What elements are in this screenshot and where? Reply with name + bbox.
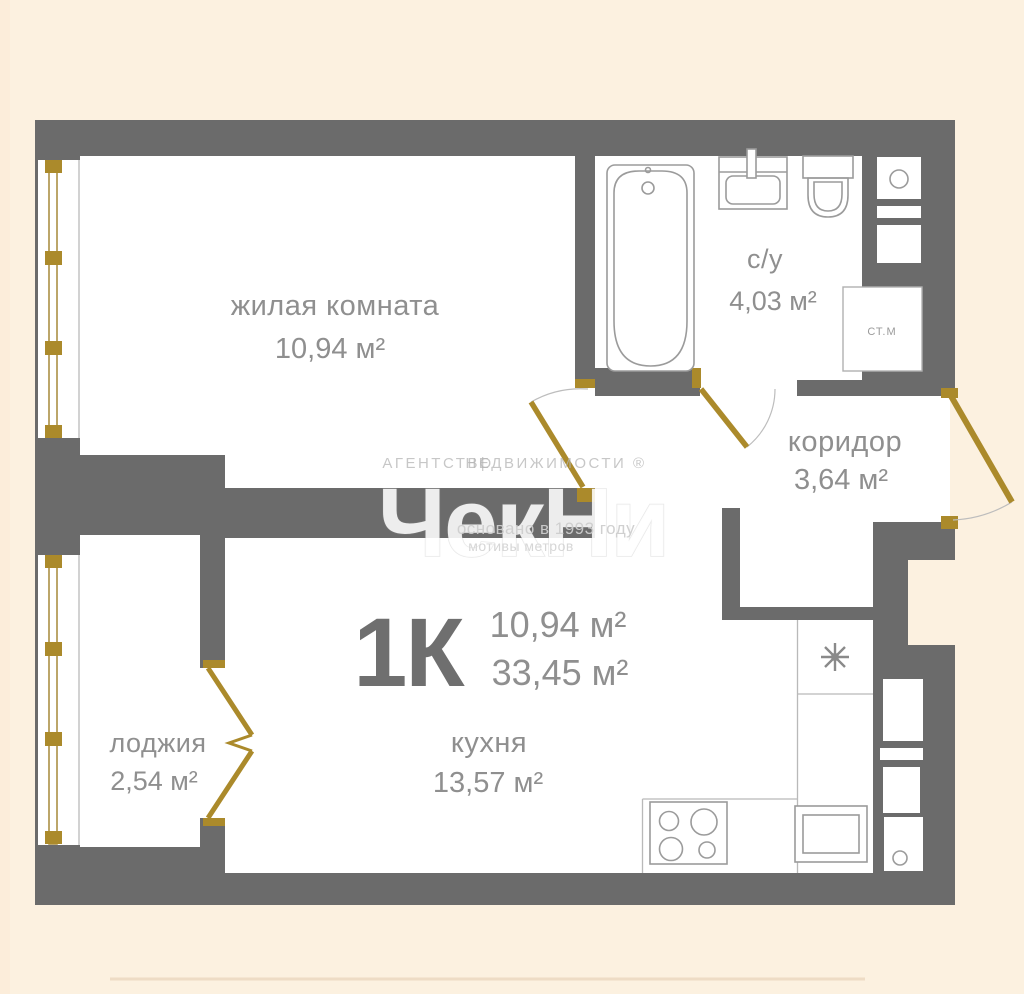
living-room-name: жилая комната (231, 290, 440, 322)
door-jamb (941, 516, 958, 529)
watermark-slogan: мотивы метров (468, 538, 574, 554)
wall-right-notch (873, 560, 908, 645)
shaft-box (883, 767, 920, 813)
door-jamb (575, 379, 595, 388)
wall-pocket-left (722, 508, 740, 620)
loggia-window-recess (38, 555, 80, 845)
kitchen-area: 13,57 м² (433, 767, 544, 799)
wall-top (35, 120, 955, 156)
door-jamb (941, 388, 958, 398)
living-room-area: 10,94 м² (275, 333, 386, 365)
loggia-area: 2,54 м² (110, 766, 198, 796)
watermark-founded: основано в 1993 году (457, 519, 635, 538)
wall-corridor-top (797, 380, 920, 396)
wall-bottom-loggia (35, 847, 225, 875)
apartment-summary: 1К 10,94 м² 33,45 м² (353, 598, 628, 707)
bathtub-icon (607, 165, 694, 371)
shaft-strip (877, 206, 921, 218)
kitchen-name: кухня (451, 727, 527, 759)
corridor-name: коридор (788, 426, 902, 458)
door-jamb (203, 818, 225, 826)
shaft-box (877, 225, 921, 263)
toilet-tank-icon (803, 156, 853, 178)
door-jamb (692, 368, 701, 388)
apartment-type: 1К (353, 598, 465, 707)
summary-living-area: 10,94 м² (490, 604, 627, 645)
washing-machine: СТ.М (843, 287, 922, 371)
door-jamb (203, 660, 225, 668)
wall-loggia-partition-top (200, 535, 225, 668)
vent-star-icon (821, 643, 849, 671)
shaft-strip (880, 748, 923, 760)
watermark: АГЕНТСТВО | НЕДВИЖИМОСТИ ® ЧекНи основан… (378, 455, 668, 577)
wall-living-bath (575, 120, 595, 388)
wall-pocket-bottom (722, 607, 875, 620)
shaft-box (884, 817, 923, 871)
wall-living-loggia (35, 455, 225, 535)
bathroom-name: с/у (747, 244, 783, 274)
vent-shaft-box (877, 157, 921, 199)
bathroom-area: 4,03 м² (729, 286, 817, 316)
living-window-recess (38, 160, 80, 438)
wall-bottom (35, 873, 955, 905)
corridor-area: 3,64 м² (794, 464, 888, 496)
wall-bath-bottom (595, 368, 700, 396)
washing-machine-label: СТ.М (867, 326, 896, 338)
sink-faucet-icon (747, 149, 756, 178)
left-edge-tint (0, 0, 10, 994)
loggia-name: лоджия (110, 728, 207, 758)
shaft-box (883, 679, 923, 741)
summary-total-area: 33,45 м² (492, 652, 629, 693)
floor-plan: СТ.М жилая комната 10,94 м² с/у 4,03 м² … (0, 0, 1024, 994)
floor-plan-svg: СТ.М жилая комната 10,94 м² с/у 4,03 м² … (0, 0, 1024, 994)
